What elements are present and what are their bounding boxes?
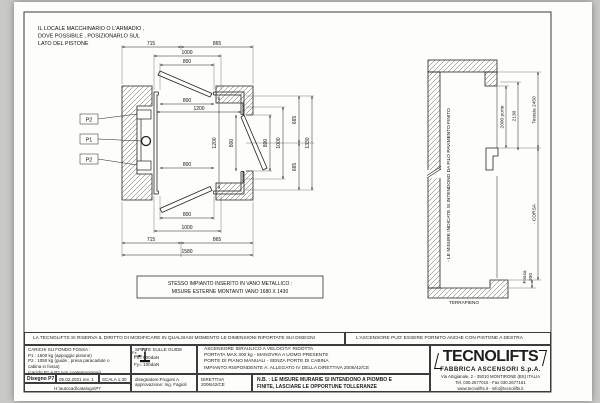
fx-label: Fx bbox=[132, 350, 136, 355]
drawing-number: Disegno P7 bbox=[24, 374, 56, 383]
guide-bracket-bottom bbox=[137, 161, 151, 170]
dim-1000-bottom: 1000 bbox=[181, 225, 192, 231]
spinte-guide-box: SPINTE SULLE GUIDE Fy Fx Fx= 500daN Fy= … bbox=[131, 345, 197, 374]
nb-line: FINITE, LASCIARE LE OPPORTUNE TOLLERANZE bbox=[257, 384, 425, 391]
dim-800-inner-top: 800 bbox=[183, 98, 192, 104]
machine-room-note: IL LOCALE MACCHINARIO O L'ARMADIO , DOVE… bbox=[38, 26, 145, 47]
guide-bracket-top bbox=[137, 110, 151, 119]
signatures-box: disegnatore:Frugoni A. approvazione: Ing… bbox=[131, 374, 197, 392]
dim-865-top: 865 bbox=[213, 41, 222, 47]
approver: approvazione: Ing. Fagioli bbox=[135, 382, 193, 388]
note-line: LATO DEL PISTONE bbox=[38, 41, 89, 47]
dim-715-bottom: 715 bbox=[147, 237, 156, 243]
plan-view: P2 P1 P2 bbox=[80, 41, 314, 257]
note-line: DOVE POSSIBILE , POSIZIONARLO SUL bbox=[38, 34, 140, 40]
dim-800-right: 800 bbox=[263, 139, 269, 148]
note-line: MISURE ESTERNE MONTANTI VANO 1680 X 1430 bbox=[172, 289, 289, 295]
dim-2000-porte: 2000 porte bbox=[500, 105, 506, 128]
dim-1330: 1330 bbox=[305, 137, 311, 148]
dim-fossa-label: Fossa bbox=[522, 270, 528, 283]
dim-1200-inner: 1200 bbox=[193, 106, 204, 112]
dim-1000-top: 1000 bbox=[181, 50, 192, 56]
p1-label: P1 bbox=[86, 138, 93, 144]
metal-shaft-note: STESSO IMPIANTO INSERITO IN VANO METALLI… bbox=[137, 276, 323, 298]
directive-number: 2006/42/CE bbox=[201, 382, 248, 388]
disclaimer-right: L'ASCENSORE PUO' ESSERE FORNITO ANCHE CO… bbox=[345, 332, 551, 345]
company-address: Via Artigianale, 2 - 25010 MONTIRONE (BS… bbox=[431, 374, 550, 380]
dim-865-bottom: 865 bbox=[213, 237, 222, 243]
carichi-fondo-fossa-box: CARICHI SU FONDO FOSSA : P1 : 1600 kg (a… bbox=[24, 345, 131, 374]
dim-fossa-value: 200 bbox=[528, 273, 534, 281]
section-landing-slab bbox=[486, 148, 498, 170]
dim-800-inner-bottom: 800 bbox=[183, 162, 192, 168]
directive-box: DIRETTIVA 2006/42/CE bbox=[197, 374, 252, 392]
section-door-header bbox=[485, 72, 497, 86]
section-view: - LE MISURE INDICATE SI INTENDONO DA FIL… bbox=[426, 60, 541, 305]
drawing-scale: SCALA 1:30 bbox=[99, 374, 131, 383]
dim-665-bottom: 665 bbox=[292, 163, 298, 172]
dim-2130: 2130 bbox=[512, 110, 518, 121]
note-line: IL LOCALE MACCHINARIO O L'ARMADIO , bbox=[38, 26, 145, 32]
dim-corsa: - CORSA bbox=[532, 203, 538, 224]
dim-1000-right: 1000 bbox=[276, 137, 282, 148]
company-subtitle: FABBRICA ASCENSORI S.p.A. bbox=[431, 366, 550, 373]
p2-label: P2 bbox=[86, 118, 93, 124]
company-web: www.tecnolifts.it - info@tecnolifts.it bbox=[431, 386, 550, 392]
tecnolifts-logo-box: TECNOLIFTS FABBRICA ASCENSORI S.p.A. Via… bbox=[430, 345, 551, 392]
plan-topright-wall bbox=[216, 86, 253, 115]
system-description-box: ASCENSORE IDRAULICO A VELOCITA' RIDOTTA … bbox=[197, 345, 430, 374]
terrapieno-label: TERRAPIENO bbox=[449, 300, 479, 305]
section-left-wall bbox=[428, 72, 440, 288]
piston-circle bbox=[142, 137, 151, 146]
file-path: H:\autocad\catalogo\P7 bbox=[24, 383, 131, 392]
dim-800-bottom: 800 bbox=[183, 212, 192, 218]
scanned-drawing-page: { "notes": { "machine_room": [ "IL LOCAL… bbox=[0, 0, 600, 403]
section-top-slab bbox=[428, 60, 497, 72]
p2-label: P2 bbox=[86, 158, 93, 164]
dim-1200-cabin: 1200 bbox=[212, 137, 218, 148]
dim-testata-2450: Testata 2450 bbox=[532, 96, 538, 124]
wall-note-vertical: - LE MISURE INDICATE SI INTENDONO DA FIL… bbox=[446, 108, 452, 262]
dim-715-top: 715 bbox=[147, 41, 156, 47]
plan-bottomright-wall bbox=[216, 171, 253, 200]
dim-800-door: 800 bbox=[229, 139, 235, 148]
guide-force-diagram: Fy Fx bbox=[132, 346, 158, 364]
dim-800-top: 800 bbox=[183, 59, 192, 65]
note-line: STESSO IMPIANTO INSERITO IN VANO METALLI… bbox=[168, 281, 292, 287]
drawing-date: 05.02.2021 rev. 1 bbox=[56, 374, 99, 383]
descr-line: IMPIANTO RISPONDENTE A: ALLEGATO IV DELL… bbox=[204, 366, 426, 372]
fy-label: Fy bbox=[142, 347, 148, 352]
dim-1580: 1580 bbox=[181, 249, 192, 255]
nb-note-box: N.B. : LE MISURE MURARIE SI INTENDONO A … bbox=[252, 374, 430, 392]
dim-665-top: 665 bbox=[292, 116, 298, 125]
disclaimer-left: LA TECNOLIFTS SI RISERVA IL DIRITTO DI M… bbox=[24, 332, 345, 345]
company-logo: TECNOLIFTS bbox=[431, 349, 550, 365]
